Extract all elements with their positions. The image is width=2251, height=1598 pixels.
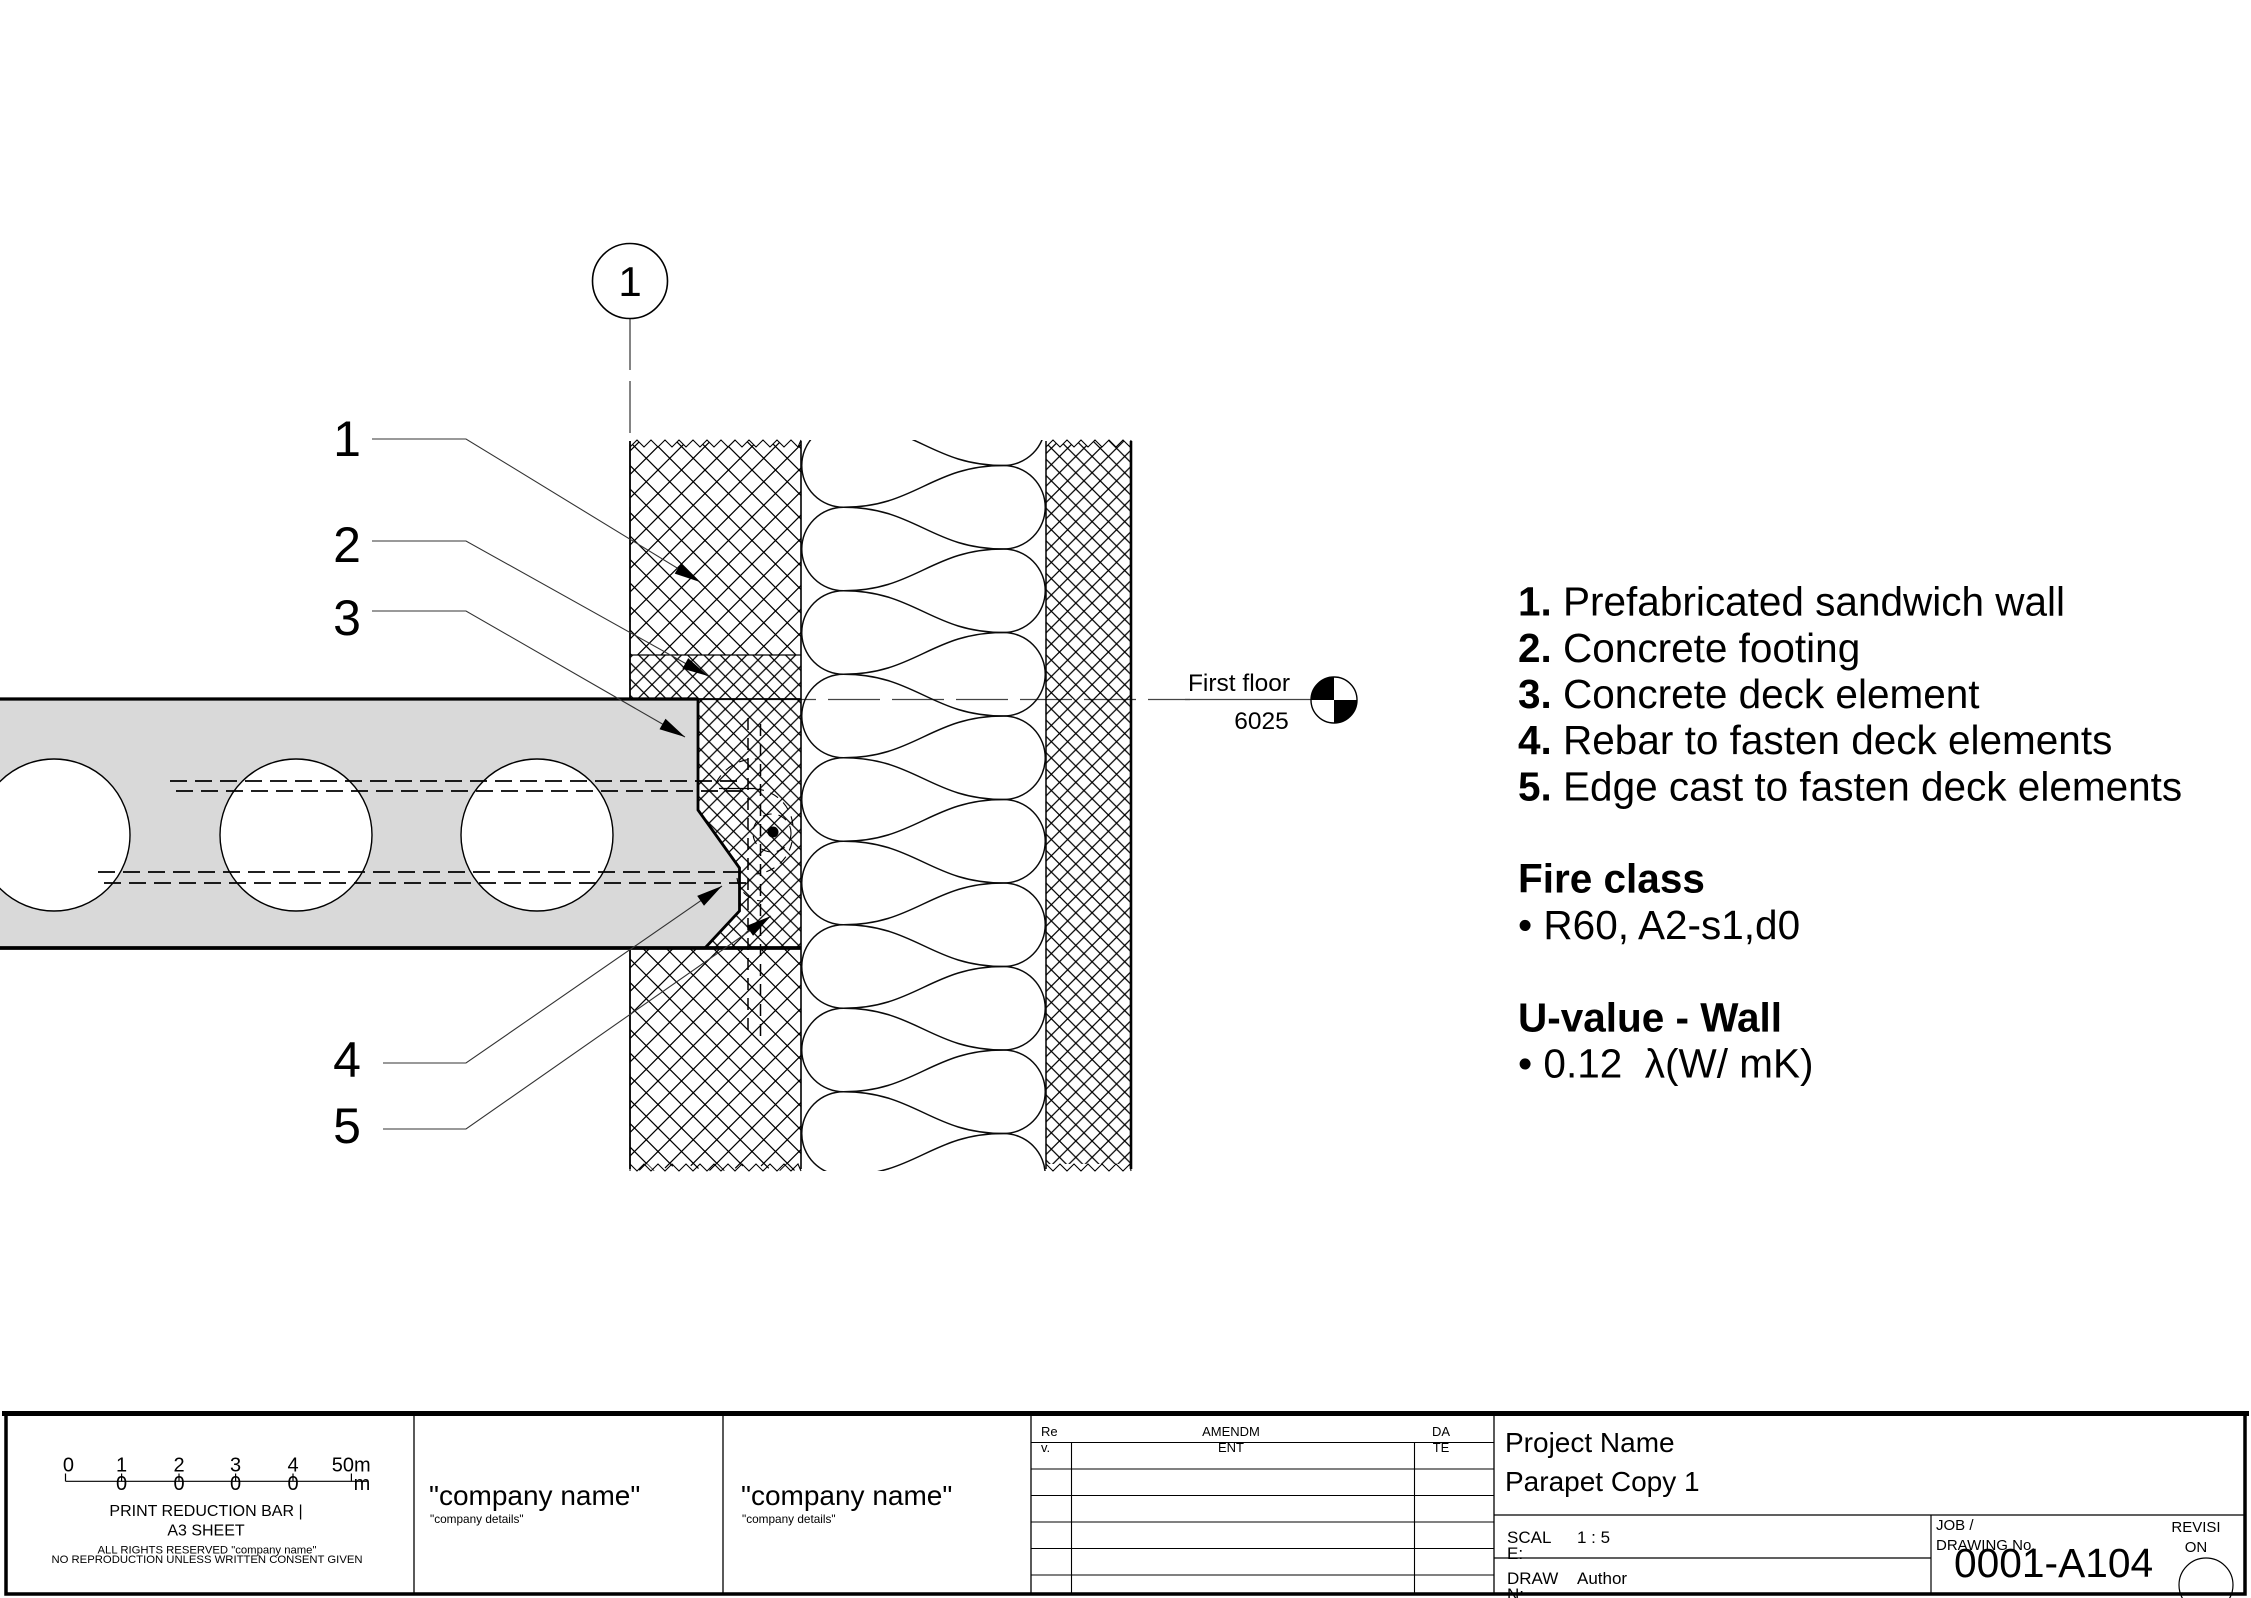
svg-text:2: 2 xyxy=(333,517,361,573)
svg-text:v.: v. xyxy=(1041,1440,1050,1455)
svg-text:Re: Re xyxy=(1041,1424,1058,1439)
svg-text:2. Concrete footing: 2. Concrete footing xyxy=(1518,625,1860,671)
svg-text:0: 0 xyxy=(230,1473,241,1495)
svg-text:Fire class: Fire class xyxy=(1518,856,1705,902)
svg-text:DA: DA xyxy=(1432,1424,1450,1439)
svg-text:REVISI: REVISI xyxy=(2171,1519,2220,1536)
svg-text:0: 0 xyxy=(63,1455,74,1477)
svg-text:5: 5 xyxy=(333,1098,361,1154)
svg-text:ON: ON xyxy=(2185,1539,2208,1556)
svg-text:U-value - Wall: U-value - Wall xyxy=(1518,994,1782,1040)
svg-text:Author: Author xyxy=(1577,1569,1627,1588)
svg-text:"company details": "company details" xyxy=(742,1512,836,1526)
svg-text:AMENDM: AMENDM xyxy=(1202,1424,1260,1439)
svg-text:PRINT REDUCTION BAR |: PRINT REDUCTION BAR | xyxy=(109,1503,302,1520)
svg-text:3: 3 xyxy=(333,590,361,646)
svg-text:4. Rebar to fasten deck elemen: 4. Rebar to fasten deck elements xyxy=(1518,717,2112,763)
svg-text:3. Concrete deck element: 3. Concrete deck element xyxy=(1518,671,1980,717)
svg-text:0: 0 xyxy=(287,1473,298,1495)
svg-text:5. Edge cast to fasten deck el: 5. Edge cast to fasten deck elements xyxy=(1518,763,2182,809)
svg-text:0: 0 xyxy=(173,1473,184,1495)
svg-text:NO REPRODUCTION UNLESS WRITTEN: NO REPRODUCTION UNLESS WRITTEN CONSENT G… xyxy=(51,1554,362,1566)
svg-text:• 0.12 λ(W/ mK): • 0.12 λ(W/ mK) xyxy=(1518,1041,1813,1087)
svg-text:TE: TE xyxy=(1433,1440,1450,1455)
svg-text:m: m xyxy=(354,1473,371,1495)
svg-text:• R60, A2-s1,d0: • R60, A2-s1,d0 xyxy=(1518,902,1800,948)
svg-text:First floor: First floor xyxy=(1188,670,1290,697)
svg-text:"company details": "company details" xyxy=(430,1512,524,1526)
svg-text:Parapet Copy 1: Parapet Copy 1 xyxy=(1505,1466,1700,1497)
svg-text:0001-A104: 0001-A104 xyxy=(1954,1540,2153,1586)
svg-text:0: 0 xyxy=(116,1473,127,1495)
svg-text:"company name": "company name" xyxy=(741,1480,952,1511)
svg-text:E:: E: xyxy=(1507,1544,1523,1563)
svg-text:1: 1 xyxy=(618,258,641,305)
svg-text:N:: N: xyxy=(1507,1585,1524,1598)
svg-text:"company name": "company name" xyxy=(429,1480,640,1511)
svg-text:4: 4 xyxy=(333,1032,361,1088)
svg-text:1. Prefabricated sandwich wall: 1. Prefabricated sandwich wall xyxy=(1518,579,2065,625)
svg-text:A3 SHEET: A3 SHEET xyxy=(167,1523,245,1540)
svg-text:1: 1 xyxy=(333,411,361,467)
svg-text:JOB /: JOB / xyxy=(1936,1517,1974,1534)
svg-text:6025: 6025 xyxy=(1234,708,1289,735)
svg-text:1 : 5: 1 : 5 xyxy=(1577,1528,1610,1547)
svg-text:Project Name: Project Name xyxy=(1505,1427,1675,1458)
svg-text:ENT: ENT xyxy=(1218,1440,1244,1455)
